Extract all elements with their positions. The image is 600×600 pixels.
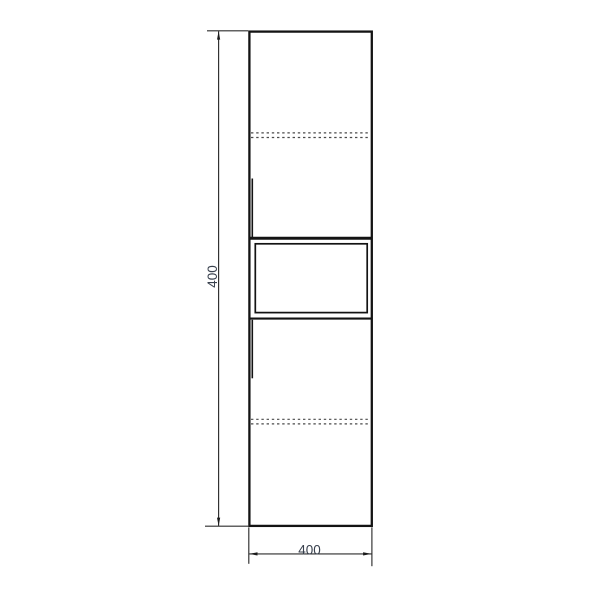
svg-text:400: 400: [205, 265, 220, 288]
svg-text:400: 400: [298, 543, 321, 558]
